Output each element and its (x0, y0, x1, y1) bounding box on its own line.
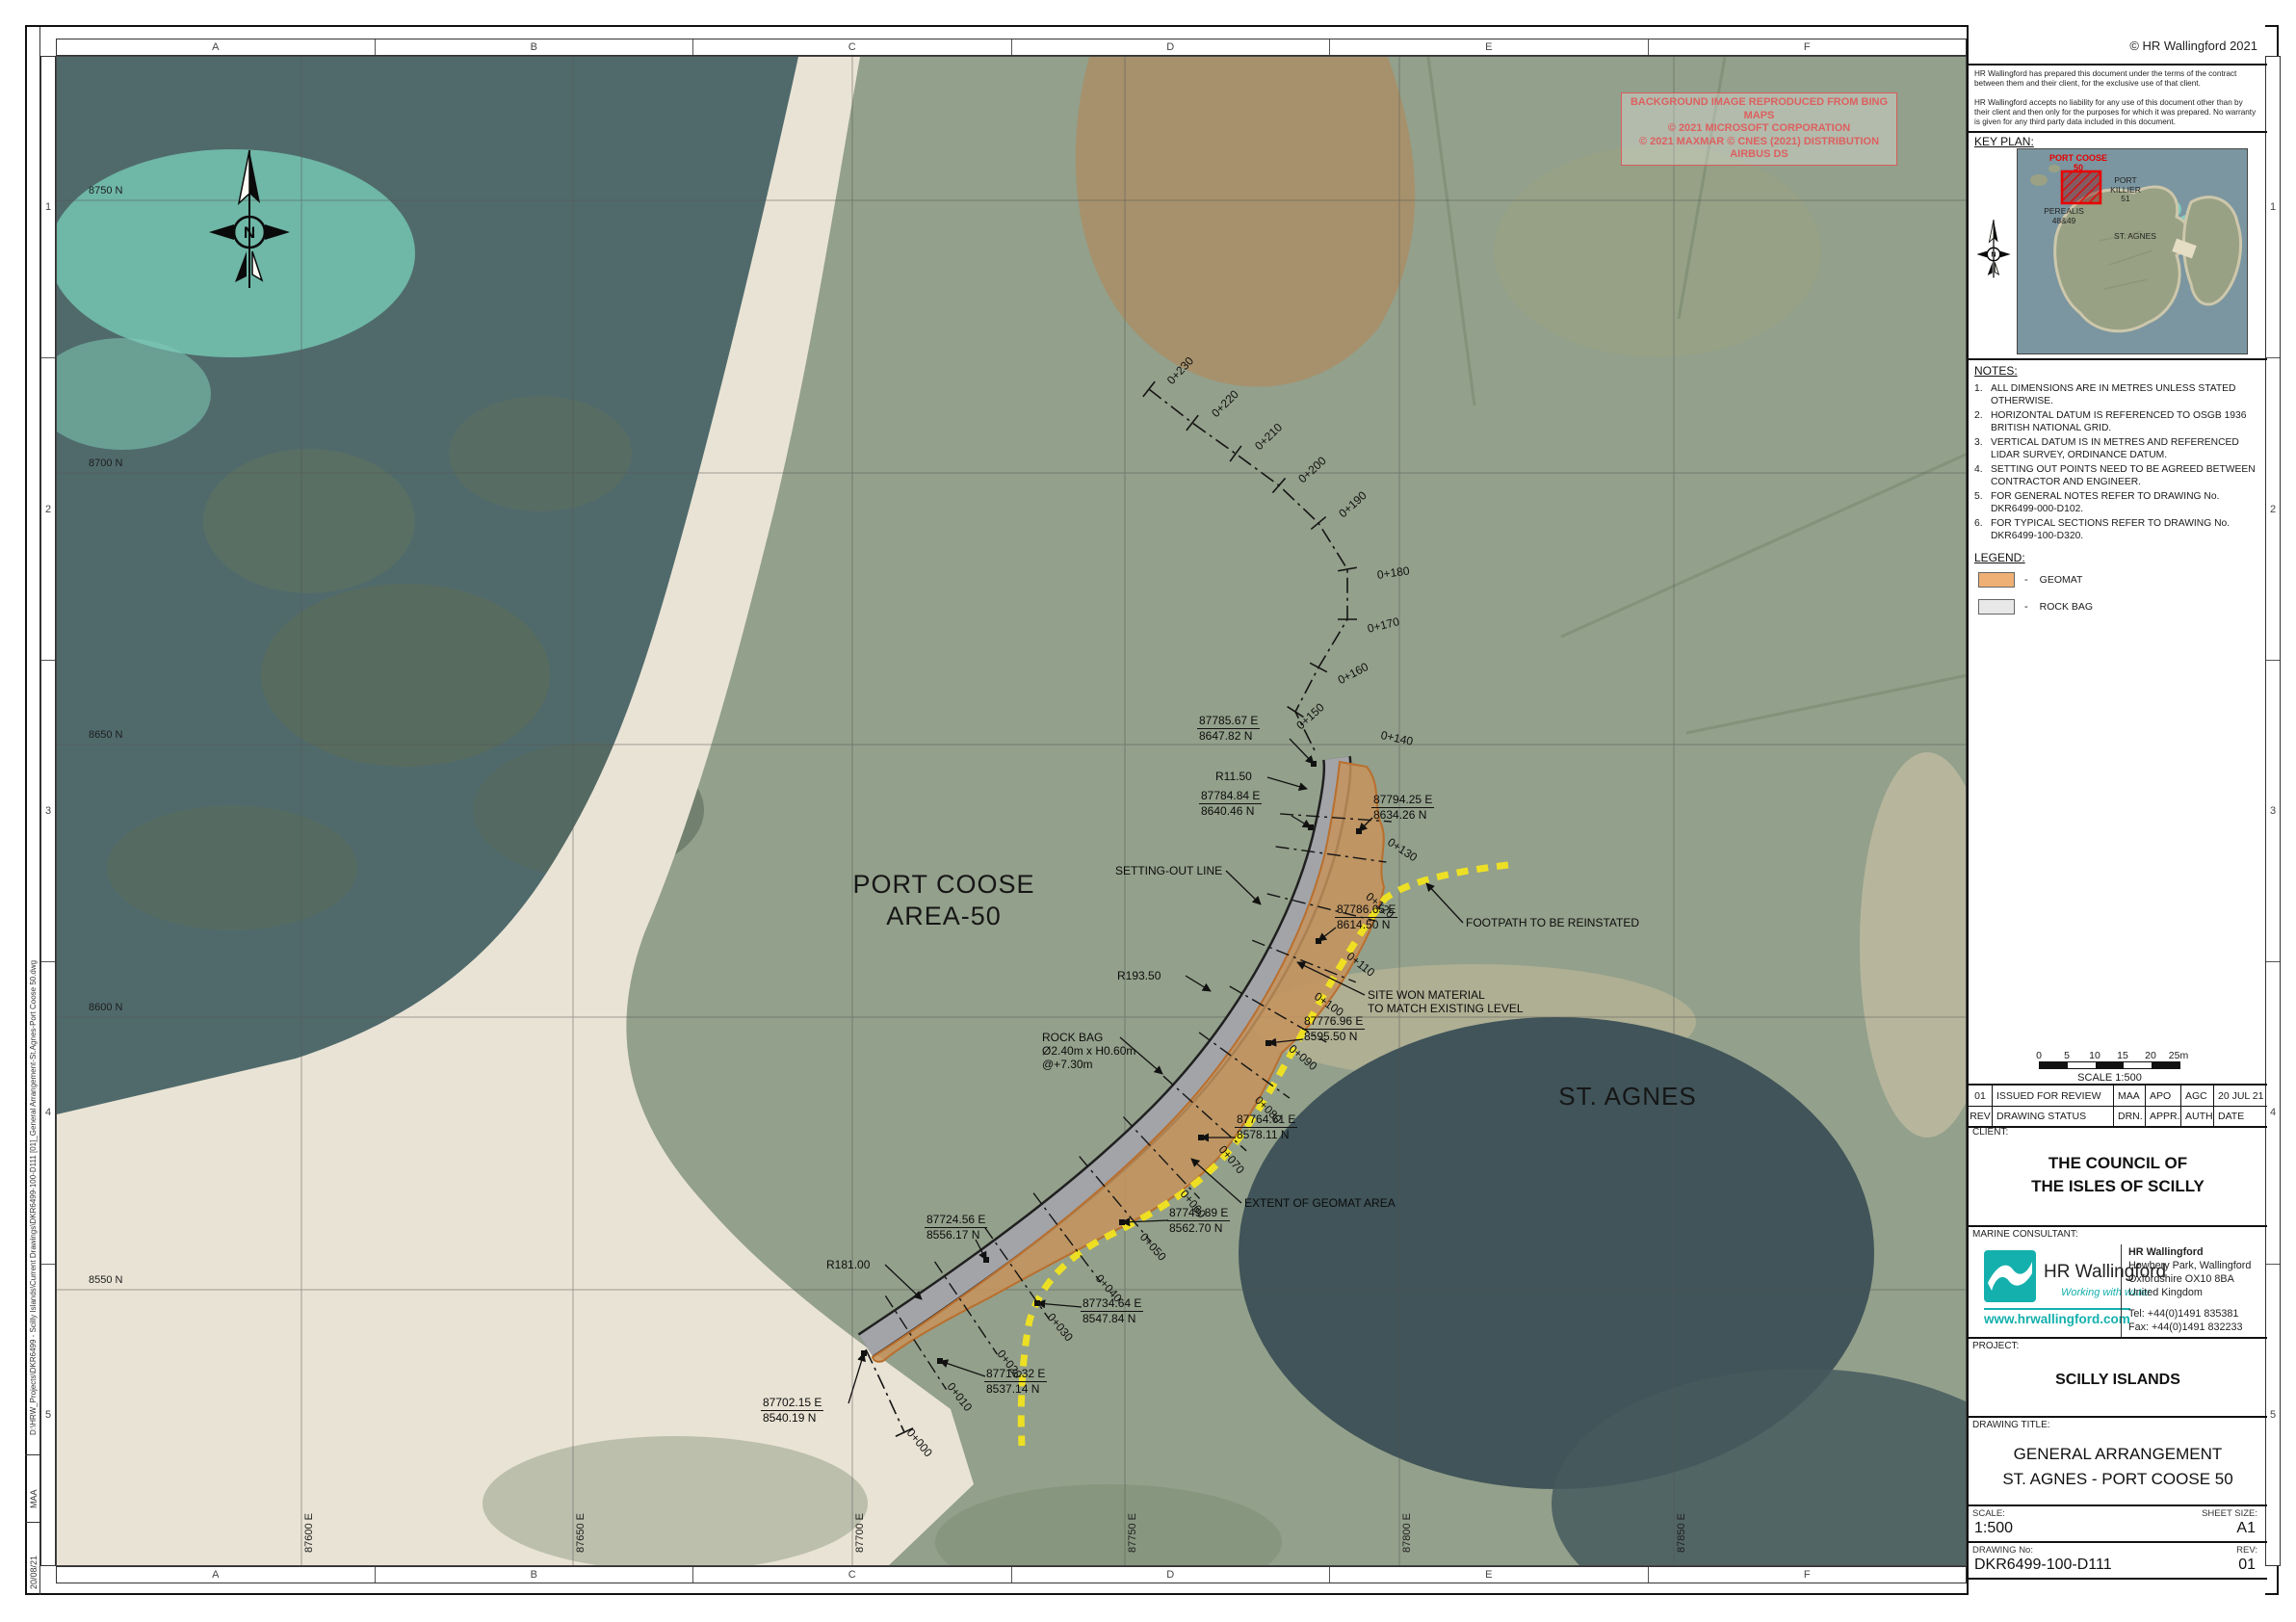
scale-label: SCALE: (1972, 1508, 2005, 1519)
title-block: © HR Wallingford 2021 HR Wallingford has… (1967, 25, 2265, 1595)
note-text: VERTICAL DATUM IS IN METRES AND REFERENC… (1991, 437, 2261, 461)
drawing-number-label: DRAWING No: (1972, 1545, 2033, 1556)
key-plan-label: ST. AGNES (2114, 232, 2156, 242)
hr-wallingford-logo-icon (1984, 1250, 2036, 1302)
rev-value: 01 (2238, 1557, 2256, 1574)
scale-value: 1:500 (1974, 1520, 2013, 1537)
project-name: SCILLY ISLANDS (1969, 1372, 2267, 1389)
map-svg: N (57, 57, 1967, 1566)
margin-left-rows: 12345 (40, 56, 56, 1566)
divider (1969, 64, 2267, 65)
setting-out-point (1034, 1300, 1040, 1306)
client-name-line2: THE ISLES OF SCILLY (1969, 1177, 2267, 1196)
note-number: 6. (1974, 518, 1991, 542)
margin-row-label: 1 (41, 57, 55, 357)
margin-row-label: 2 (2266, 357, 2280, 659)
consultant-name: HR Wallingford (2128, 1246, 2204, 1260)
note-text: FOR GENERAL NOTES REFER TO DRAWING No. D… (1991, 491, 2261, 515)
divider (2121, 1244, 2122, 1337)
scale-tick-label: 10 (2089, 1050, 2100, 1061)
note-number: 3. (1974, 437, 1991, 461)
margin-top-columns: ABCDEF (56, 39, 1967, 56)
revision-header-cell: DRN. (2113, 1107, 2145, 1126)
revision-entry-cell: AGC (2180, 1086, 2213, 1106)
logo-website: www.hrwallingford.com (1984, 1308, 2130, 1326)
revision-header-cell: REV (1969, 1107, 1992, 1126)
revision-header-cell: AUTH. (2180, 1107, 2213, 1126)
margin-column-label: D (1011, 1567, 1330, 1583)
revision-table: 01ISSUED FOR REVIEWMAAAPOAGC20 JUL 21REV… (1969, 1084, 2267, 1128)
sheet-size-value: A1 (2236, 1520, 2256, 1537)
legend-dash: - (2024, 601, 2028, 613)
margin-row-label: 1 (2266, 57, 2280, 357)
legend-list: -GEOMAT-ROCK BAG (1978, 572, 2257, 626)
consultant-address3: United Kingdom (2128, 1287, 2203, 1300)
legend-title: LEGEND: (1974, 551, 2025, 564)
consultant-fax: Fax: +44(0)1491 832233 (2128, 1321, 2243, 1335)
notes-list: 1.ALL DIMENSIONS ARE IN METRES UNLESS ST… (1974, 383, 2261, 545)
setting-out-point (1265, 1040, 1271, 1046)
file-path-text: D:\HRW_Projects\DKR6499 - Scilly Islands… (29, 960, 38, 1435)
divider (1969, 1225, 2267, 1227)
note-item: 3.VERTICAL DATUM IS IN METRES AND REFERE… (1974, 437, 2261, 461)
setting-out-point (1356, 828, 1362, 834)
note-item: 5.FOR GENERAL NOTES REFER TO DRAWING No.… (1974, 491, 2261, 515)
key-plan-label: PORT COOSE 50 (2049, 153, 2107, 172)
note-text: ALL DIMENSIONS ARE IN METRES UNLESS STAT… (1991, 383, 2261, 407)
note-text: SETTING OUT POINTS NEED TO BE AGREED BET… (1991, 464, 2261, 488)
drawing-title-line2: ST. AGNES - PORT COOSE 50 (1969, 1470, 2267, 1489)
scale-tick-label: 5 (2064, 1050, 2070, 1061)
revision-entry-cell: 01 (1969, 1086, 1992, 1106)
scale-bar-segment (2124, 1062, 2152, 1068)
file-path-column: D:\HRW_Projects\DKR6499 - Scilly Islands… (25, 27, 40, 1595)
divider (25, 1522, 40, 1523)
scale-bar-segment (2068, 1062, 2096, 1068)
scale-bar-segment (2152, 1062, 2179, 1068)
key-plan-label: PORT KILLIER 51 (2110, 176, 2141, 204)
margin-column-label: F (1648, 39, 1967, 55)
divider (1969, 1541, 2267, 1543)
svg-text:N: N (244, 223, 255, 242)
note-item: 2.HORIZONTAL DATUM IS REFERENCED TO OSGB… (1974, 410, 2261, 434)
setting-out-point (1311, 761, 1317, 767)
divider (1969, 1578, 2267, 1580)
port-coose-extent-box (2062, 171, 2100, 203)
consultant-address1: Howbery Park, Wallingford (2128, 1260, 2251, 1273)
consultant-label: MARINE CONSULTANT: (1972, 1229, 2078, 1240)
revision-entry-cell: ISSUED FOR REVIEW (1992, 1086, 2113, 1106)
note-text: HORIZONTAL DATUM IS REFERENCED TO OSGB 1… (1991, 410, 2261, 434)
scale-tick-label: 15 (2117, 1050, 2128, 1061)
note-item: 6.FOR TYPICAL SECTIONS REFER TO DRAWING … (1974, 518, 2261, 542)
author-initials: MAA (29, 1489, 39, 1508)
note-item: 1.ALL DIMENSIONS ARE IN METRES UNLESS ST… (1974, 383, 2261, 407)
drawing-title-label: DRAWING TITLE: (1972, 1420, 2050, 1430)
client-label: CLIENT: (1972, 1127, 2008, 1138)
setting-out-point (1316, 938, 1321, 944)
revision-entry-cell: MAA (2113, 1086, 2145, 1106)
revision-row: REVDRAWING STATUSDRN.APPR.AUTH.DATE (1969, 1106, 2267, 1126)
divider (1969, 1504, 2267, 1506)
scale-tick-label: 20 (2145, 1050, 2156, 1061)
margin-row-label: 4 (2266, 961, 2280, 1263)
margin-right-rows: 12345 (2265, 56, 2281, 1566)
revision-entry-cell: 20 JUL 21 (2213, 1086, 2267, 1106)
note-text: FOR TYPICAL SECTIONS REFER TO DRAWING No… (1991, 518, 2261, 542)
margin-column-label: C (692, 1567, 1011, 1583)
margin-row-label: 5 (2266, 1264, 2280, 1565)
revision-entry-cell: APO (2145, 1086, 2180, 1106)
margin-column-label: A (57, 39, 375, 55)
client-name-line1: THE COUNCIL OF (1969, 1154, 2267, 1173)
legend-item: -GEOMAT (1978, 572, 2257, 588)
revision-row: 01ISSUED FOR REVIEWMAAAPOAGC20 JUL 21 (1969, 1086, 2267, 1106)
note-item: 4.SETTING OUT POINTS NEED TO BE AGREED B… (1974, 464, 2261, 488)
margin-row-label: 2 (41, 357, 55, 659)
scale-tick-label: 0 (2036, 1050, 2042, 1061)
legend-item: -ROCK BAG (1978, 599, 2257, 615)
project-label: PROJECT: (1972, 1341, 2019, 1351)
setting-out-point (937, 1358, 943, 1364)
setting-out-point (861, 1350, 867, 1356)
map-area: N (56, 56, 1967, 1566)
aerial-terrain (57, 57, 1967, 1566)
margin-column-label: A (57, 1567, 375, 1583)
margin-column-label: E (1329, 39, 1648, 55)
scale-tick-label: 25m (2169, 1050, 2188, 1061)
rev-label: REV: (2236, 1545, 2257, 1556)
notes-title: NOTES: (1974, 364, 2018, 378)
revision-header-cell: APPR. (2145, 1107, 2180, 1126)
setting-out-point (983, 1257, 989, 1263)
margin-column-label: D (1011, 39, 1330, 55)
margin-row-label: 3 (41, 660, 55, 961)
disclaimer-2: HR Wallingford accepts no liability for … (1974, 98, 2259, 127)
key-plan: PORT COOSE 50PORT KILLIER 51PEREALIS 48&… (2017, 148, 2248, 354)
margin-column-label: F (1648, 1567, 1967, 1583)
drawing-title-line1: GENERAL ARRANGEMENT (1969, 1445, 2267, 1464)
legend-label: GEOMAT (2040, 574, 2083, 586)
setting-out-point (1198, 1135, 1204, 1140)
revision-header-cell: DATE (2213, 1107, 2267, 1126)
divider (1969, 358, 2267, 360)
consultant-address2: Oxfordshire OX10 8BA (2128, 1273, 2234, 1287)
margin-column-label: B (375, 39, 693, 55)
scale-bar-caption: SCALE 1:500 (2039, 1072, 2180, 1084)
svg-text:N: N (1991, 251, 1996, 259)
scale-bar-segment (2096, 1062, 2124, 1068)
drawing-sheet: D:\HRW_Projects\DKR6499 - Scilly Islands… (0, 0, 2296, 1622)
drawing-number: DKR6499-100-D111 (1974, 1557, 2112, 1574)
revision-header-cell: DRAWING STATUS (1992, 1107, 2113, 1126)
margin-row-label: 3 (2266, 660, 2280, 961)
scale-bar-segments (2039, 1061, 2180, 1069)
margin-column-label: B (375, 1567, 693, 1583)
copyright: © HR Wallingford 2021 (1969, 39, 2257, 53)
setting-out-point (1119, 1219, 1125, 1225)
setting-out-point (1308, 824, 1314, 830)
key-plan-label: PEREALIS 48&49 (2044, 207, 2084, 225)
legend-label: ROCK BAG (2040, 601, 2093, 613)
disclaimer-1: HR Wallingford has prepared this documen… (1974, 69, 2259, 89)
consultant-tel: Tel: +44(0)1491 835381 (2128, 1308, 2238, 1321)
divider (1969, 1416, 2267, 1418)
divider (25, 1454, 40, 1455)
margin-bottom-columns: ABCDEF (56, 1566, 1967, 1583)
divider (1969, 1337, 2267, 1339)
margin-column-label: E (1329, 1567, 1648, 1583)
scale-bar: 0510152025m SCALE 1:500 (2039, 1050, 2180, 1084)
note-number: 1. (1974, 383, 1991, 407)
legend-swatch (1978, 572, 2015, 588)
key-plan-title: KEY PLAN: (1974, 135, 2034, 148)
note-number: 2. (1974, 410, 1991, 434)
scale-bar-segment (2040, 1062, 2068, 1068)
note-number: 4. (1974, 464, 1991, 488)
legend-dash: - (2024, 574, 2028, 586)
margin-row-label: 5 (41, 1264, 55, 1565)
note-number: 5. (1974, 491, 1991, 515)
divider (1969, 131, 2267, 133)
sheet-size-label: SHEET SIZE: (2202, 1508, 2257, 1519)
margin-row-label: 4 (41, 961, 55, 1263)
key-plan-north-arrow-icon: N (1974, 216, 2013, 283)
scale-bar-ticks: 0510152025m (2039, 1050, 2180, 1061)
margin-column-label: C (692, 39, 1011, 55)
legend-swatch (1978, 599, 2015, 615)
plot-date: 20/08/21 (29, 1556, 39, 1589)
